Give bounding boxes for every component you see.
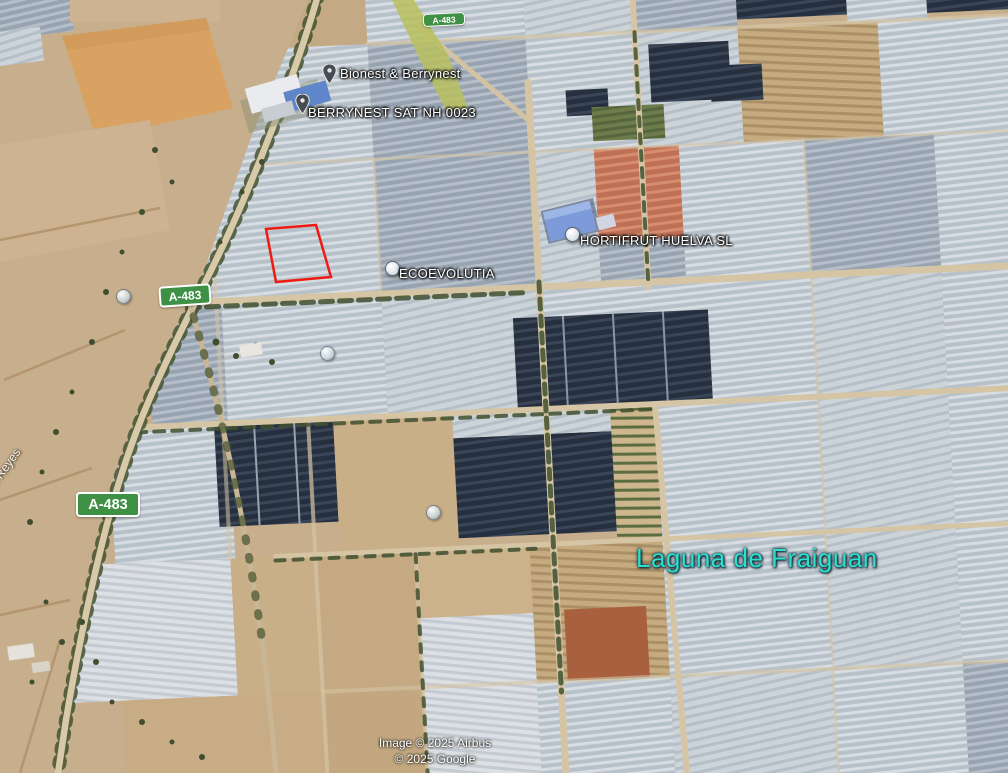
poi-label-bionest[interactable]: Bionest & Berrynest: [340, 66, 461, 81]
satellite-map-canvas[interactable]: Bionest & Berrynest BERRYNEST SAT NH 002…: [0, 0, 1008, 773]
poi-label-hortifrut[interactable]: HORTIFRUT HUELVA SL: [580, 233, 733, 248]
placemark-dot-icon[interactable]: [426, 505, 441, 520]
attribution-line1: Image © 2025 Airbus: [350, 735, 520, 751]
placemark-dot-icon[interactable]: [116, 289, 131, 304]
water-label-laguna: Laguna de Fraiguan: [636, 543, 878, 574]
road-badge-text: A-483: [432, 14, 456, 25]
placemark-dot-icon[interactable]: [320, 346, 335, 361]
poi-label-ecoevolutia[interactable]: ECOEVOLUTIA: [399, 266, 495, 281]
satellite-imagery: [0, 0, 1008, 773]
placemark-dot-icon[interactable]: [565, 227, 580, 242]
placemark-dot-icon[interactable]: [385, 261, 400, 276]
road-badge-a483: A-483: [423, 12, 466, 27]
road-badge-text: A-483: [88, 497, 128, 513]
poi-label-berrynest-sat[interactable]: BERRYNEST SAT NH 0023: [308, 105, 476, 120]
map-attribution: Image © 2025 Airbus © 2025 Google: [350, 735, 520, 767]
road-badge-text: A-483: [168, 287, 202, 303]
road-badge-a483: A-483: [76, 492, 140, 517]
road-badge-a483: A-483: [158, 283, 211, 308]
attribution-line2: © 2025 Google: [350, 751, 520, 767]
